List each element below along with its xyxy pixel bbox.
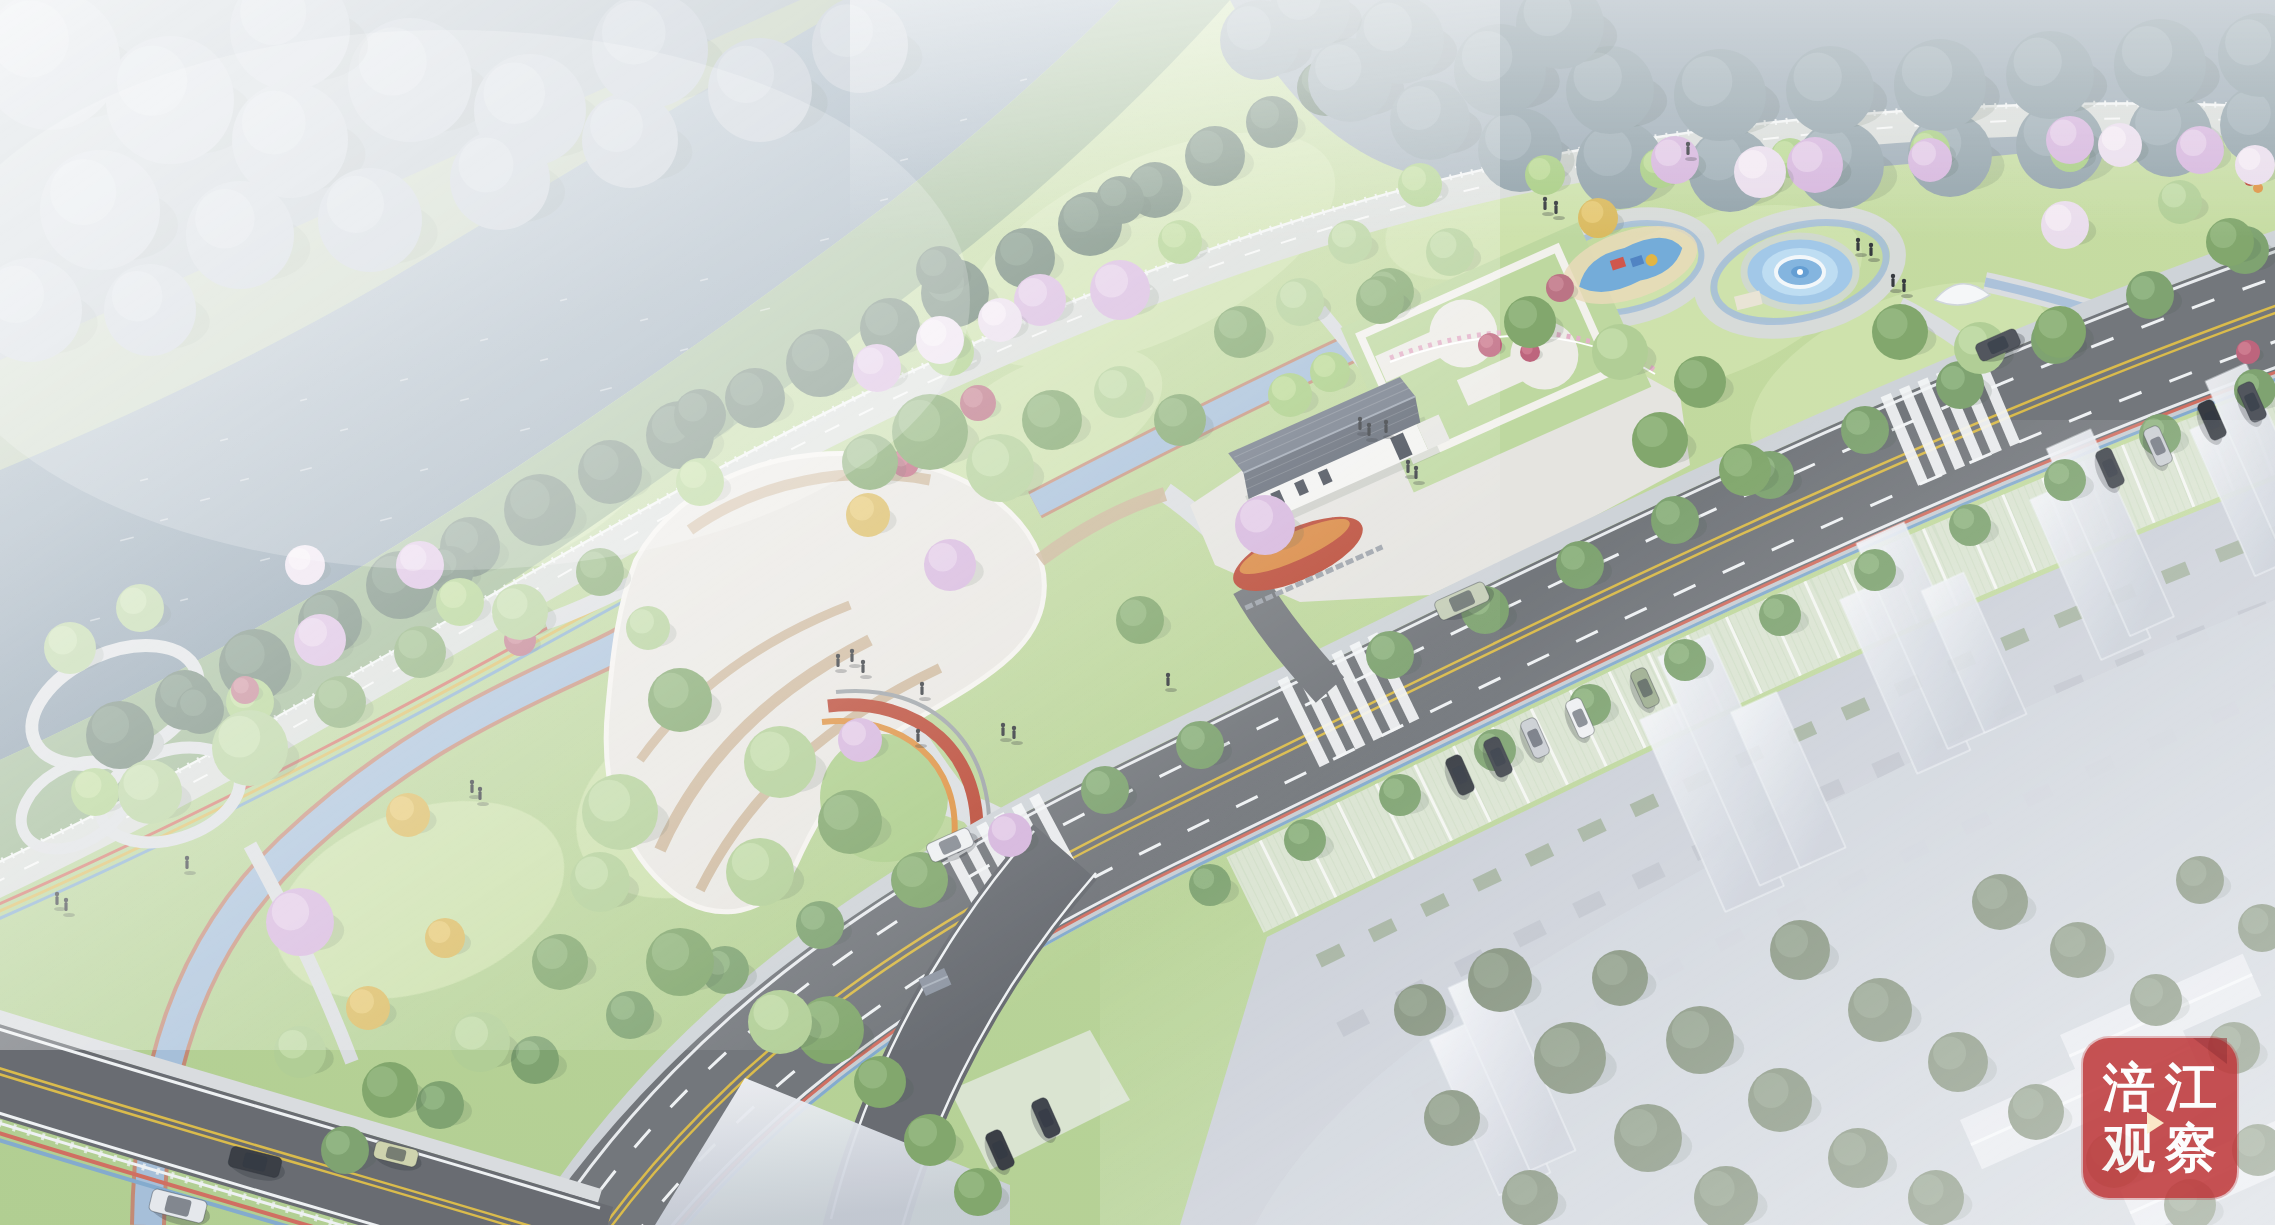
aerial-park-rendering: 涪江 观察	[0, 0, 2275, 1225]
fog-overlays	[0, 0, 2275, 1225]
watermark-logo: 涪江 观察	[2083, 1038, 2237, 1198]
watermark-line1: 涪江	[2093, 1057, 2227, 1118]
scene-canvas	[0, 0, 2275, 1225]
play-triangle-icon	[2147, 1112, 2164, 1134]
